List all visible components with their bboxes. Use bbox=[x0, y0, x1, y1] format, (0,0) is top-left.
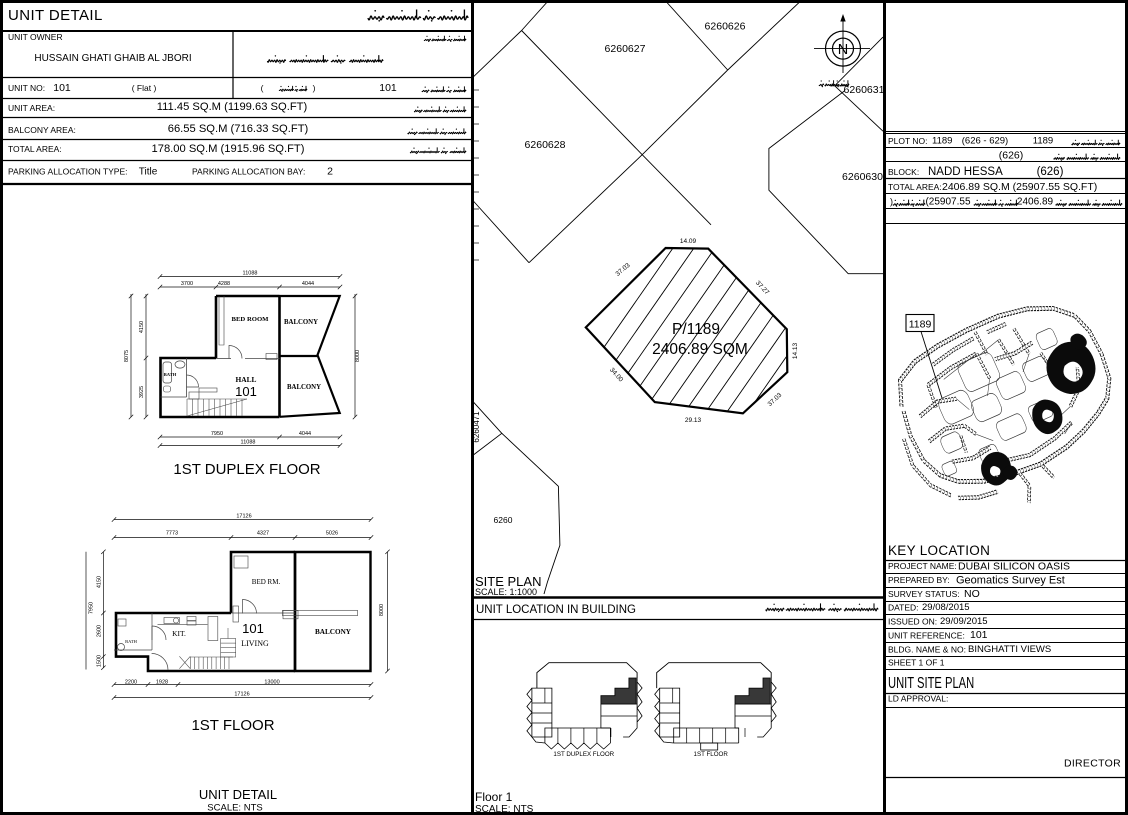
svg-text:1ST DUPLEX FLOOR: 1ST DUPLEX FLOOR bbox=[553, 751, 614, 758]
svg-text:6260630: 6260630 bbox=[842, 171, 883, 183]
svg-text:LIVING: LIVING bbox=[241, 639, 269, 648]
svg-text:1ST FLOOR: 1ST FLOOR bbox=[694, 751, 729, 758]
svg-text:PREPARED BY:: PREPARED BY: bbox=[888, 575, 950, 585]
svg-text:66.55 SQ.M (716.33 SQ.FT): 66.55 SQ.M (716.33 SQ.FT) bbox=[168, 123, 309, 135]
svg-text:37.03: 37.03 bbox=[615, 262, 632, 278]
svg-text:2600: 2600 bbox=[97, 625, 103, 637]
svg-text:UNIT OWNER: UNIT OWNER bbox=[8, 32, 63, 42]
svg-text:BALCONY: BALCONY bbox=[315, 628, 352, 636]
svg-text:BALCONY AREA:: BALCONY AREA: bbox=[8, 125, 76, 135]
svg-text:Title: Title bbox=[139, 167, 158, 178]
svg-text:8000: 8000 bbox=[355, 350, 361, 362]
svg-text:PROJECT NAME:: PROJECT NAME: bbox=[888, 561, 957, 571]
svg-text:14.09: 14.09 bbox=[680, 238, 697, 245]
svg-text:SCALE: 1:1000: SCALE: 1:1000 bbox=[475, 587, 537, 597]
svg-text:(: ( bbox=[261, 83, 264, 93]
svg-text:BLOCK:: BLOCK: bbox=[888, 167, 919, 177]
svg-text:TOTAL AREA:: TOTAL AREA: bbox=[8, 144, 62, 154]
svg-text:BINGHATTI VIEWS: BINGHATTI VIEWS bbox=[968, 644, 1051, 655]
svg-text:TOTAL AREA:: TOTAL AREA: bbox=[888, 182, 942, 192]
svg-text:DATED:: DATED: bbox=[888, 603, 919, 613]
svg-text:17126: 17126 bbox=[236, 514, 251, 520]
svg-text:2200: 2200 bbox=[125, 679, 137, 685]
svg-text:UNIT REFERENCE:: UNIT REFERENCE: bbox=[888, 631, 965, 641]
svg-text:3925: 3925 bbox=[139, 386, 145, 398]
svg-text:37.03: 37.03 bbox=[767, 392, 784, 408]
svg-text:SHEET 1 OF 1: SHEET 1 OF 1 bbox=[888, 658, 945, 668]
svg-text:( Flat ): ( Flat ) bbox=[132, 83, 157, 93]
svg-text:34.00: 34.00 bbox=[608, 367, 624, 384]
svg-text:6260626: 6260626 bbox=[705, 21, 746, 33]
svg-text:7773: 7773 bbox=[166, 531, 178, 537]
svg-text:): ) bbox=[313, 83, 316, 93]
svg-text:KIT.: KIT. bbox=[172, 629, 186, 638]
svg-text:2: 2 bbox=[327, 166, 333, 178]
svg-text:UNIT AREA:: UNIT AREA: bbox=[8, 103, 55, 113]
svg-text:PARKING ALLOCATION BAY:: PARKING ALLOCATION BAY: bbox=[192, 167, 305, 177]
svg-text:NADD HESSA: NADD HESSA bbox=[928, 166, 1003, 178]
svg-text:101: 101 bbox=[379, 82, 397, 94]
svg-text:7950: 7950 bbox=[89, 602, 95, 614]
svg-text:(25907.55: (25907.55 bbox=[925, 197, 970, 208]
svg-text:BATH: BATH bbox=[164, 372, 177, 377]
svg-text:29/08/2015: 29/08/2015 bbox=[922, 602, 970, 613]
svg-text:1189: 1189 bbox=[909, 319, 932, 331]
svg-text:1ST DUPLEX FLOOR: 1ST DUPLEX FLOOR bbox=[173, 461, 320, 478]
svg-text:2406.89: 2406.89 bbox=[1017, 197, 1054, 208]
svg-text:4288: 4288 bbox=[218, 281, 230, 287]
svg-text:2406.89 SQM: 2406.89 SQM bbox=[652, 341, 748, 358]
svg-text:HALL: HALL bbox=[236, 375, 257, 384]
svg-text:101: 101 bbox=[53, 82, 71, 94]
svg-text:UNIT NO:: UNIT NO: bbox=[8, 83, 45, 93]
svg-text:UNIT DETAIL: UNIT DETAIL bbox=[8, 7, 103, 24]
svg-text:PLOT NO:: PLOT NO: bbox=[888, 136, 928, 146]
svg-text:ISSUED ON:: ISSUED ON: bbox=[888, 617, 937, 627]
svg-text:13000: 13000 bbox=[264, 679, 279, 685]
svg-text:178.00 SQ.M (1915.96 SQ.FT): 178.00 SQ.M (1915.96 SQ.FT) bbox=[152, 143, 305, 155]
svg-text:NO: NO bbox=[964, 588, 980, 600]
svg-text:P/1189: P/1189 bbox=[672, 321, 720, 338]
svg-text:Geomatics Survey Est: Geomatics Survey Est bbox=[956, 575, 1065, 587]
svg-text:4044: 4044 bbox=[299, 431, 311, 437]
svg-text:): ) bbox=[890, 197, 893, 207]
svg-text:SCALE: NTS: SCALE: NTS bbox=[207, 803, 262, 814]
svg-text:29/09/2015: 29/09/2015 bbox=[940, 616, 988, 627]
svg-text:6260471: 6260471 bbox=[472, 411, 481, 443]
svg-text:SURVEY STATUS:: SURVEY STATUS: bbox=[888, 589, 960, 599]
svg-text:LD APPROVAL:: LD APPROVAL: bbox=[888, 694, 948, 704]
svg-text:4044: 4044 bbox=[302, 281, 314, 287]
svg-text:6260: 6260 bbox=[494, 515, 513, 525]
svg-text:4150: 4150 bbox=[97, 576, 103, 588]
svg-text:UNIT SITE PLAN: UNIT SITE PLAN bbox=[888, 673, 974, 692]
svg-text:(626): (626) bbox=[1037, 166, 1064, 178]
svg-text:8075: 8075 bbox=[124, 350, 130, 362]
svg-text:1189: 1189 bbox=[932, 136, 952, 147]
svg-text:1500: 1500 bbox=[97, 655, 103, 667]
svg-text:BALCONY: BALCONY bbox=[287, 384, 321, 391]
svg-text:5026: 5026 bbox=[326, 531, 338, 537]
svg-text:29.13: 29.13 bbox=[685, 417, 702, 424]
svg-text:(626 - 629): (626 - 629) bbox=[962, 136, 1008, 147]
svg-text:6260631: 6260631 bbox=[844, 84, 885, 96]
svg-text:BLDG. NAME & NO:: BLDG. NAME & NO: bbox=[888, 645, 966, 655]
svg-text:N: N bbox=[838, 42, 848, 58]
svg-text:14.13: 14.13 bbox=[792, 342, 799, 359]
svg-text:SCALE: NTS: SCALE: NTS bbox=[475, 804, 534, 815]
svg-text:1928: 1928 bbox=[156, 679, 168, 685]
svg-text:8000: 8000 bbox=[379, 604, 385, 616]
svg-text:3700: 3700 bbox=[181, 281, 193, 287]
svg-text:101: 101 bbox=[970, 629, 988, 641]
svg-text:BED RM.: BED RM. bbox=[252, 578, 281, 586]
svg-text:KEY LOCATION: KEY LOCATION bbox=[888, 543, 990, 558]
svg-text:7950: 7950 bbox=[211, 431, 223, 437]
svg-text:6260627: 6260627 bbox=[605, 43, 646, 55]
svg-text:PARKING ALLOCATION TYPE:: PARKING ALLOCATION TYPE: bbox=[8, 167, 128, 177]
svg-text:11088: 11088 bbox=[243, 271, 258, 277]
svg-text:4150: 4150 bbox=[139, 321, 145, 333]
svg-text:HUSSAIN GHATI GHAIB AL JBORI: HUSSAIN GHATI GHAIB AL JBORI bbox=[34, 53, 191, 64]
svg-text:4327: 4327 bbox=[257, 531, 269, 537]
svg-text:UNIT DETAIL: UNIT DETAIL bbox=[199, 787, 277, 802]
svg-text:2406.89 SQ.M (25907.55 SQ.FT): 2406.89 SQ.M (25907.55 SQ.FT) bbox=[942, 181, 1097, 193]
svg-text:11088: 11088 bbox=[241, 440, 256, 446]
svg-text:101: 101 bbox=[235, 384, 257, 399]
svg-text:6260628: 6260628 bbox=[525, 139, 566, 151]
svg-text:UNIT LOCATION IN BUILDING: UNIT LOCATION IN BUILDING bbox=[476, 604, 636, 616]
svg-text:1189: 1189 bbox=[1033, 136, 1053, 147]
svg-text:Floor 1: Floor 1 bbox=[475, 790, 513, 804]
svg-text:DUBAI SILICON OASIS: DUBAI SILICON OASIS bbox=[958, 561, 1070, 573]
svg-text:BALCONY: BALCONY bbox=[284, 319, 318, 326]
svg-text:BED ROOM: BED ROOM bbox=[232, 316, 270, 323]
svg-text:DIRECTOR: DIRECTOR bbox=[1064, 758, 1121, 770]
svg-text:111.45 SQ.M (1199.63 SQ.FT): 111.45 SQ.M (1199.63 SQ.FT) bbox=[157, 101, 308, 113]
svg-text:(626): (626) bbox=[999, 150, 1024, 162]
svg-text:BATH: BATH bbox=[125, 639, 138, 644]
svg-text:17126: 17126 bbox=[234, 692, 249, 698]
svg-text:37.27: 37.27 bbox=[754, 280, 770, 297]
svg-text:101: 101 bbox=[242, 621, 264, 636]
svg-text:1ST FLOOR: 1ST FLOOR bbox=[191, 717, 274, 734]
